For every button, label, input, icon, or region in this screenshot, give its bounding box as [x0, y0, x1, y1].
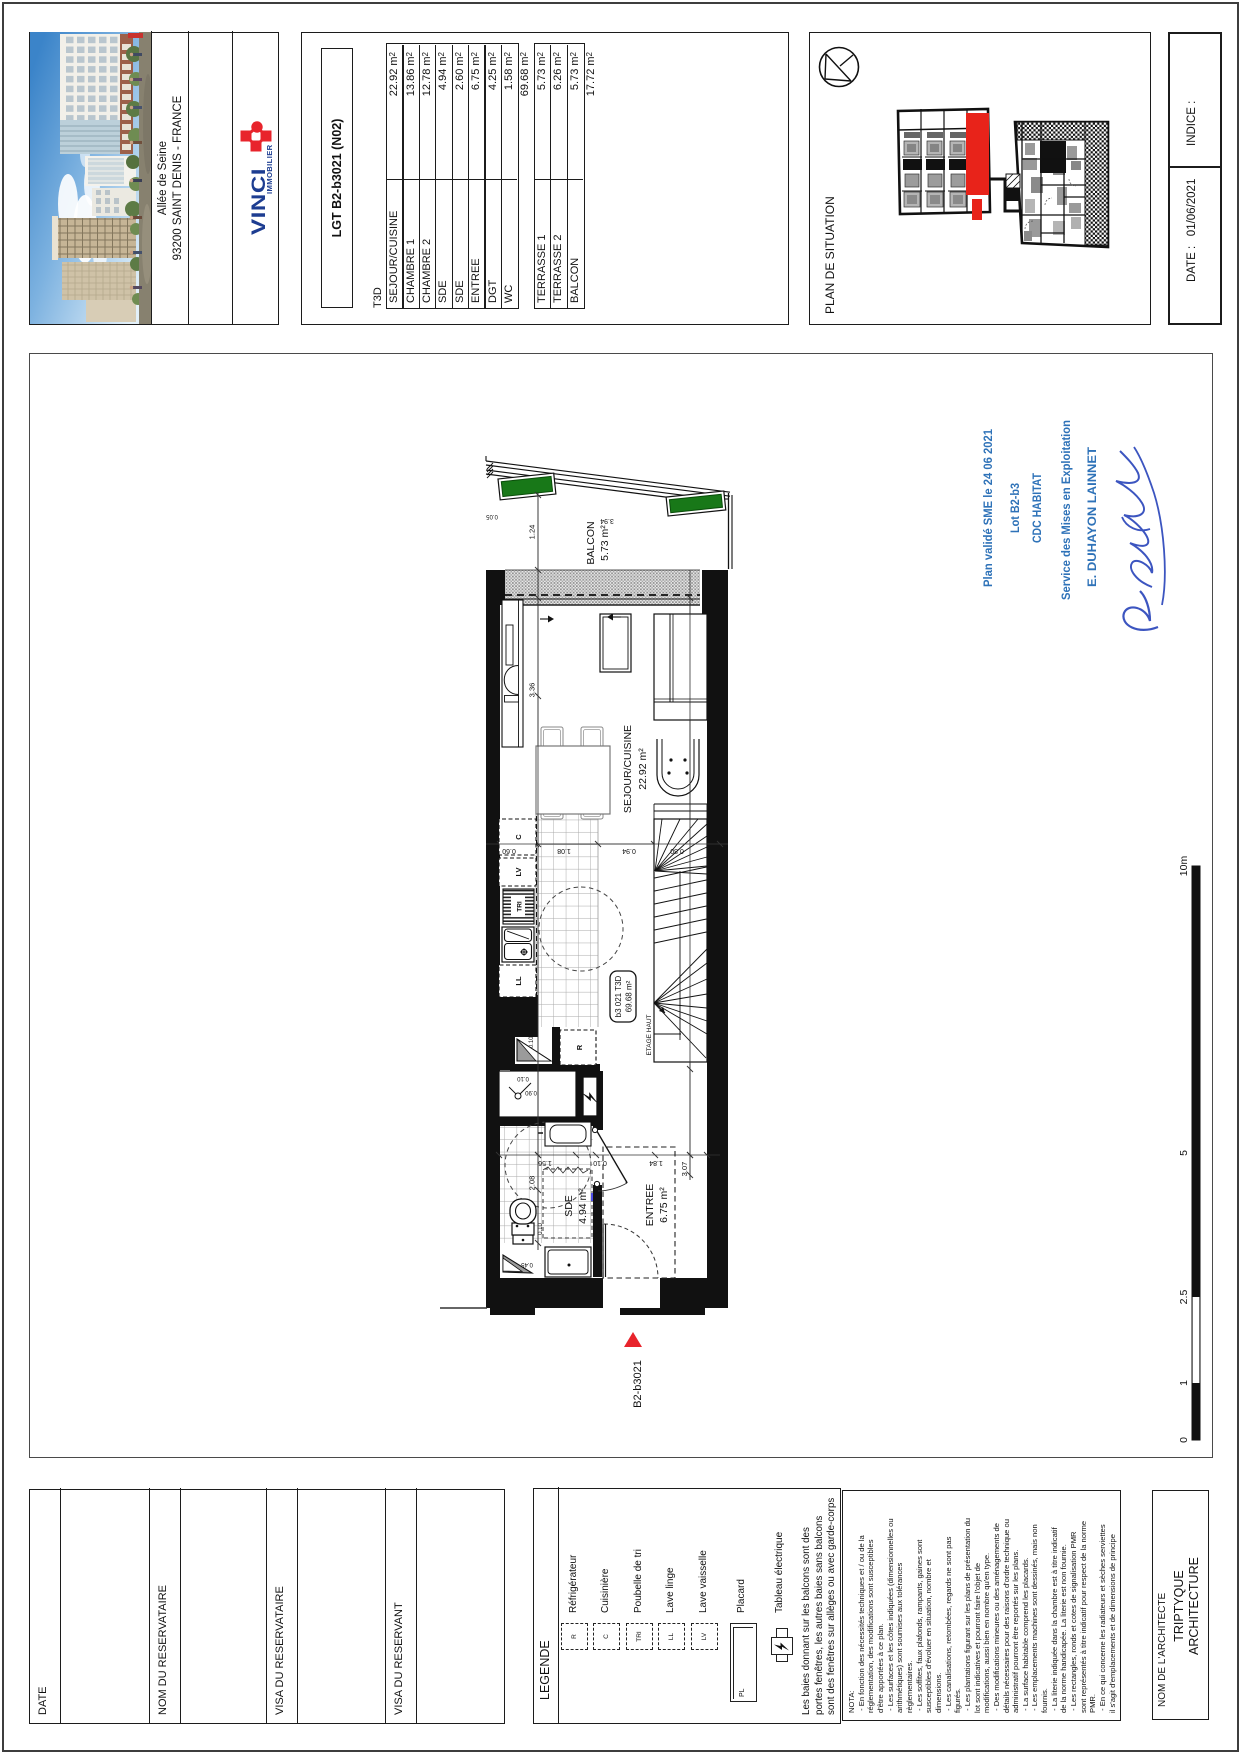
svg-text:1: 1 — [1178, 1380, 1190, 1386]
svg-text:3.36: 3.36 — [528, 683, 537, 698]
svg-text:0.45: 0.45 — [521, 1261, 533, 1267]
svg-text:Plan validé SME le 24 06 2021: Plan validé SME le 24 06 2021 — [981, 429, 995, 587]
svg-text:E. DUHAYON LAINNET: E. DUHAYON LAINNET — [1085, 446, 1099, 587]
svg-text:4.94 m²: 4.94 m² — [577, 1188, 589, 1224]
svg-text:R: R — [575, 1044, 584, 1050]
svg-text:LL: LL — [514, 976, 523, 986]
svg-text:TRI: TRI — [517, 901, 524, 912]
svg-text:Lot B2-b3: Lot B2-b3 — [1008, 483, 1022, 533]
svg-text:0.10: 0.10 — [517, 1075, 529, 1081]
svg-text:1.08: 1.08 — [557, 847, 571, 854]
svg-text:3.94: 3.94 — [600, 517, 614, 524]
svg-text:2.5: 2.5 — [1178, 1290, 1190, 1305]
svg-text:5: 5 — [1178, 1150, 1190, 1156]
svg-text:0: 0 — [1178, 1437, 1190, 1443]
svg-text:3.07: 3.07 — [680, 1162, 689, 1177]
svg-text:ENTREE: ENTREE — [644, 1184, 656, 1227]
svg-text:69.68 m²: 69.68 m² — [625, 980, 634, 1012]
svg-text:0.80: 0.80 — [670, 847, 684, 854]
svg-text:0.94: 0.94 — [622, 847, 636, 854]
svg-text:1.24: 1.24 — [528, 525, 537, 540]
svg-text:C: C — [514, 834, 523, 840]
svg-text:1.56: 1.56 — [538, 1159, 552, 1166]
svg-text:SDE: SDE — [563, 1195, 575, 1217]
svg-text:Service des Mises en Exploitat: Service des Mises en Exploitation — [1059, 420, 1073, 600]
svg-text:b3 021 T3D: b3 021 T3D — [614, 975, 623, 1017]
svg-text:0.90: 0.90 — [525, 1089, 537, 1095]
svg-text:ETAGE HAUT: ETAGE HAUT — [646, 1014, 653, 1055]
svg-text:10m: 10m — [1178, 856, 1190, 877]
svg-text:B2-b3021: B2-b3021 — [632, 1360, 644, 1408]
svg-text:1.84: 1.84 — [649, 1159, 663, 1166]
svg-text:0.10: 0.10 — [593, 1159, 607, 1166]
svg-text:SEJOUR/CUISINE: SEJOUR/CUISINE — [622, 725, 634, 813]
svg-text:2.08: 2.08 — [528, 1176, 537, 1191]
svg-text:5.73 m²: 5.73 m² — [599, 525, 611, 561]
svg-text:22.92 m²: 22.92 m² — [637, 748, 649, 790]
svg-text:0.05: 0.05 — [486, 513, 498, 519]
svg-text:6.75 m²: 6.75 m² — [658, 1187, 670, 1223]
svg-text:CDC HABITAT: CDC HABITAT — [1030, 472, 1044, 543]
svg-text:0.60: 0.60 — [502, 847, 516, 854]
svg-text:LV: LV — [514, 867, 523, 876]
svg-text:BALCON: BALCON — [585, 521, 597, 564]
